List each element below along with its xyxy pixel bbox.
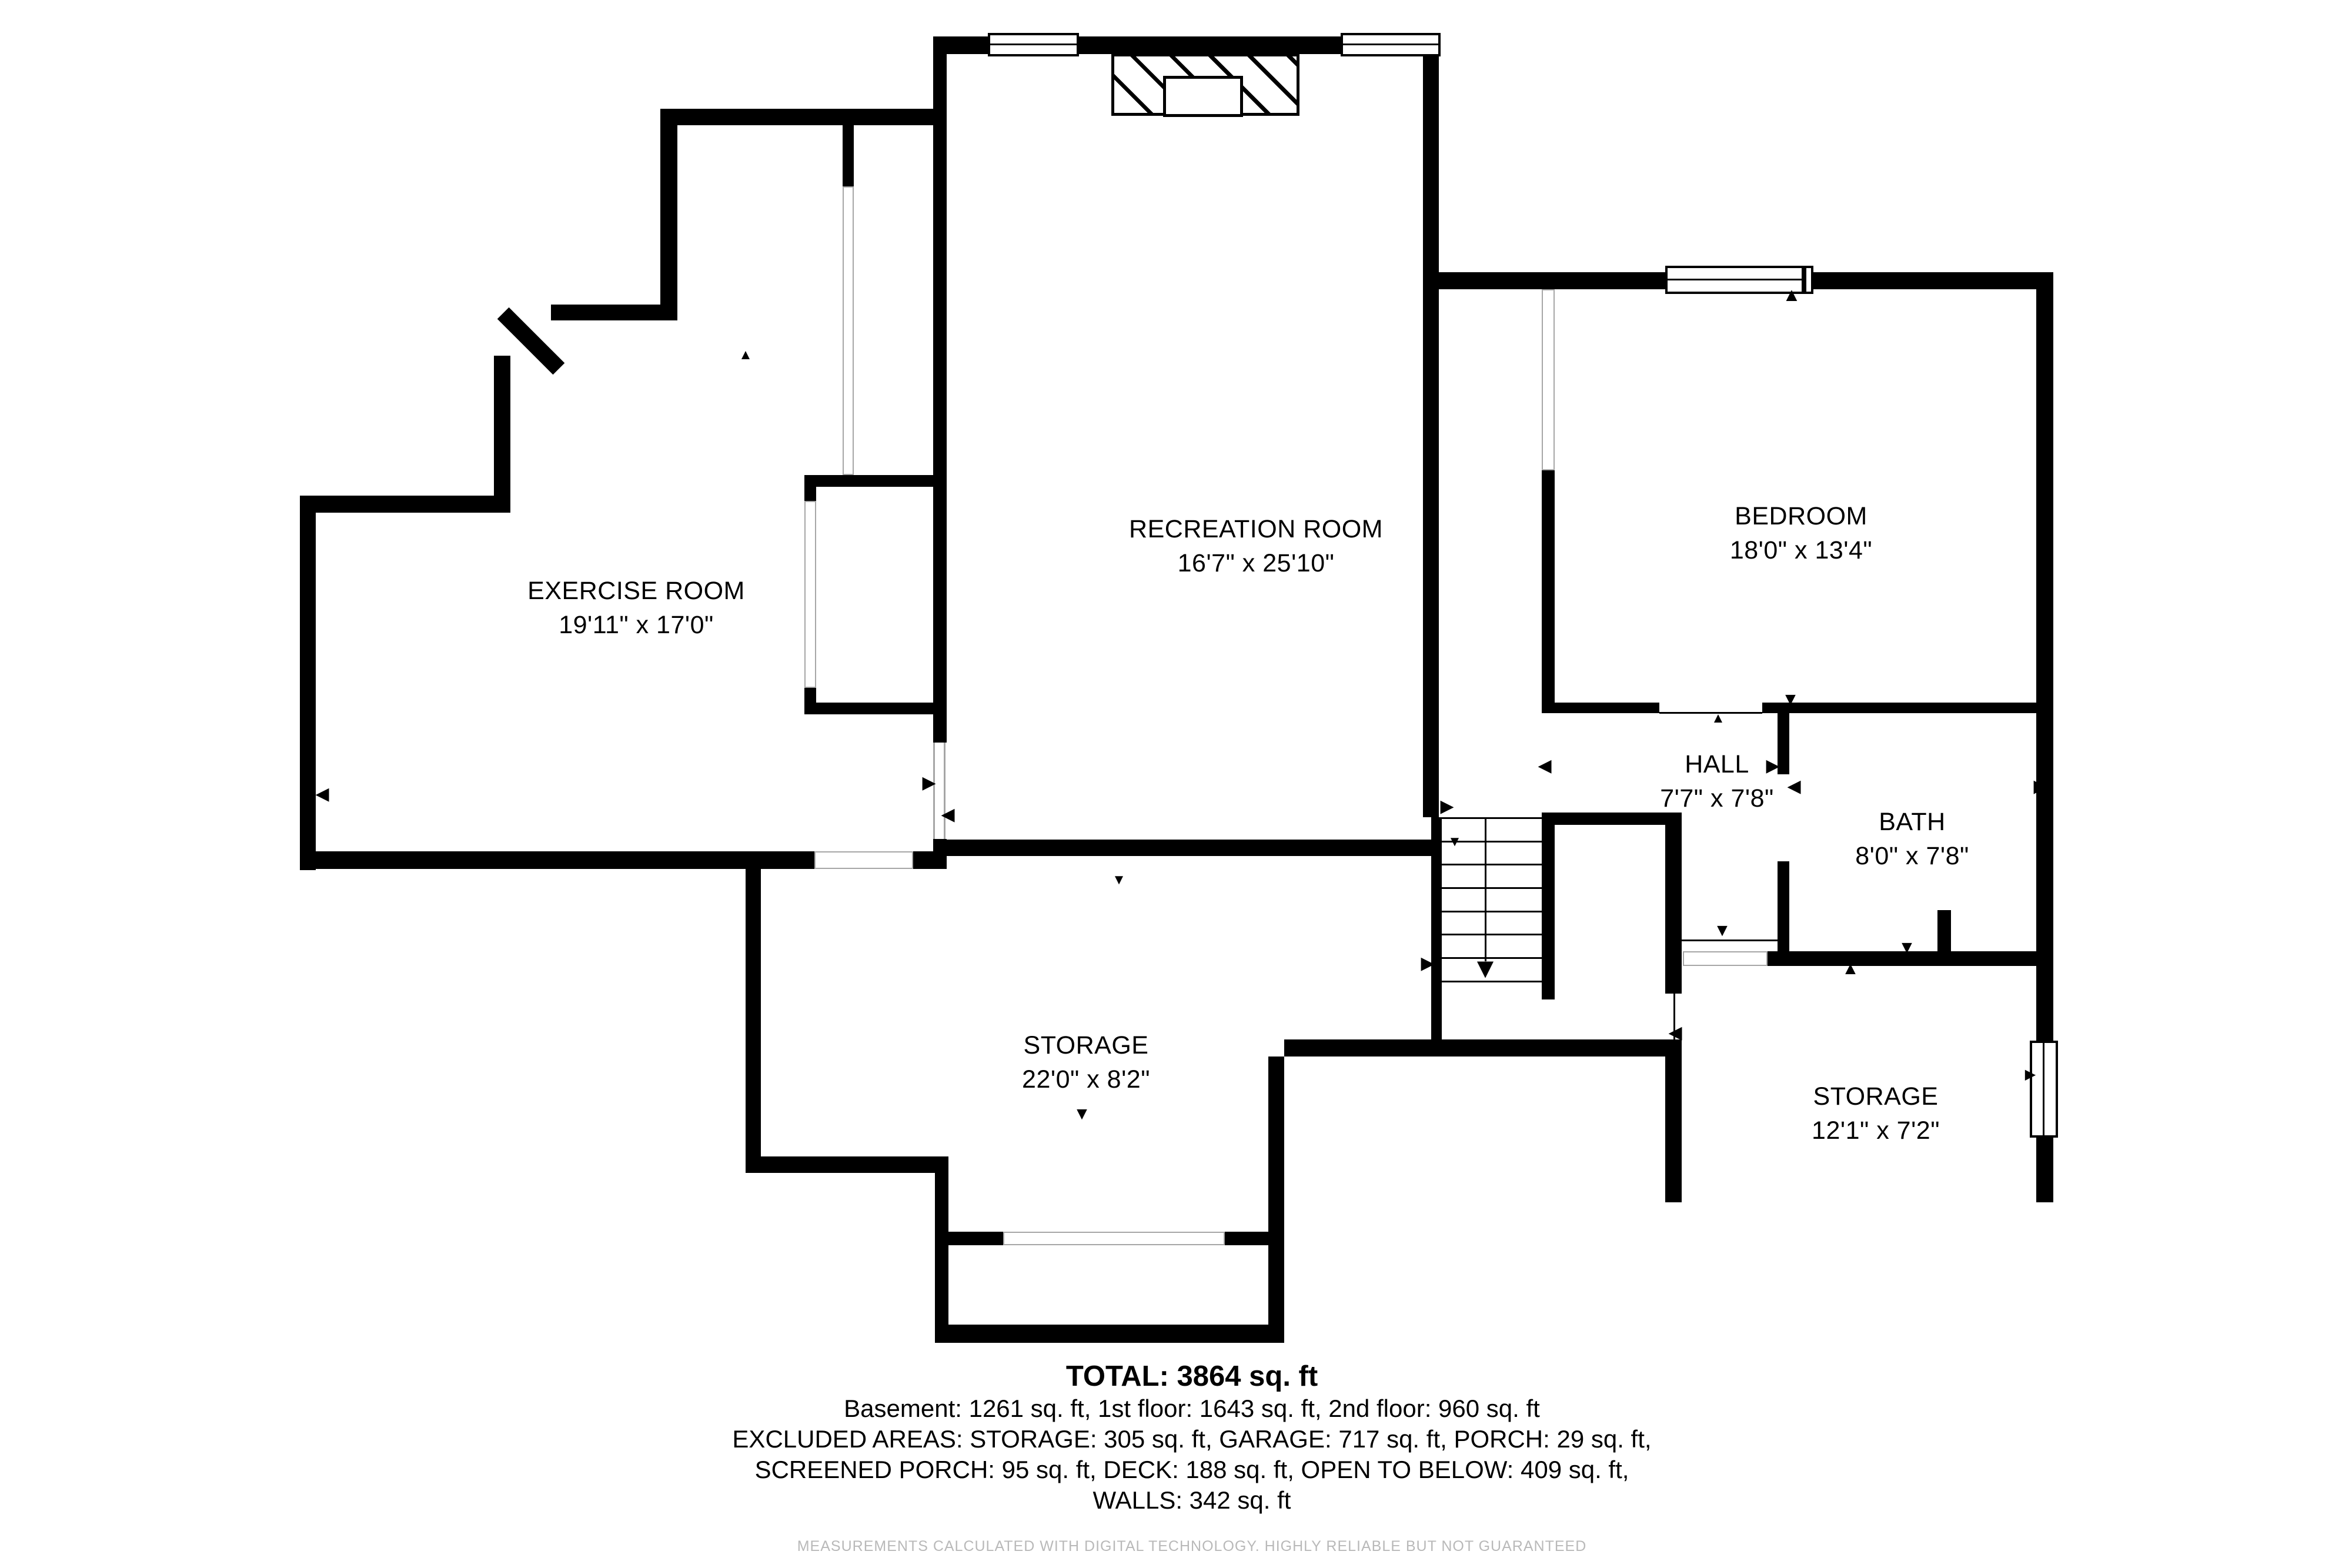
- dimension-arrow: ▶: [2025, 1068, 2036, 1082]
- dimension-arrow: ▲: [739, 348, 753, 362]
- window: [988, 33, 1079, 56]
- wall-segment: [843, 125, 854, 186]
- dimension-arrow: ▼: [1898, 939, 1916, 957]
- wall-segment: [1812, 272, 2053, 289]
- window: [843, 186, 854, 475]
- dimension-arrow: ▲: [1782, 285, 1801, 304]
- dimension-arrow: ◀: [941, 806, 954, 824]
- wall-segment: [1542, 813, 1682, 825]
- window-post: [1804, 266, 1813, 294]
- wall-segment: [494, 356, 510, 513]
- room-name: HALL: [1685, 750, 1749, 778]
- dimension-arrow: ▼: [1448, 835, 1462, 849]
- wall-segment: [1665, 825, 1682, 994]
- summary-line: WALLS: 342 sq. ft: [16, 1485, 2352, 1516]
- room-label-bath: BATH 8'0" x 7'8": [1855, 805, 1969, 873]
- wall-segment: [660, 109, 677, 320]
- wall-segment: [2036, 1138, 2053, 1202]
- disclaimer-text: MEASUREMENTS CALCULATED WITH DIGITAL TEC…: [16, 1531, 2352, 1562]
- wall-segment: [1431, 817, 1442, 1057]
- summary-line: SCREENED PORCH: 95 sq. ft, DECK: 188 sq.…: [16, 1455, 2352, 1485]
- dimension-arrow: ◀: [1668, 1024, 1682, 1042]
- wall-segment: [660, 109, 945, 125]
- wall-segment: [746, 1156, 948, 1173]
- room-dims: 8'0" x 7'8": [1855, 842, 1969, 870]
- fireplace-firebox: [1163, 76, 1243, 117]
- room-label-storage: STORAGE 22'0" x 8'2": [1022, 1028, 1150, 1096]
- room-label-recreation: RECREATION ROOM 16'7" x 25'10": [1129, 512, 1383, 580]
- dimension-arrow: ▲: [1711, 711, 1725, 726]
- wall-segment: [2036, 272, 2053, 1041]
- wall-segment: [1423, 36, 1439, 817]
- wall-segment: [948, 1232, 1003, 1245]
- room-dims: 19'11" x 17'0": [559, 611, 714, 639]
- summary-line: Basement: 1261 sq. ft, 1st floor: 1643 s…: [16, 1393, 2352, 1424]
- wall-segment: [804, 487, 816, 501]
- basement-floor-plan: EXERCISE ROOM 19'11" x 17'0" RECREATION …: [0, 0, 2352, 1568]
- dimension-arrow: ▲: [1419, 49, 1438, 68]
- room-name: STORAGE: [1024, 1031, 1149, 1059]
- stairs-center-line: [1485, 817, 1486, 961]
- room-label-storage-2: STORAGE 12'1" x 7'2": [1812, 1079, 1940, 1148]
- wall-segment: [300, 496, 510, 513]
- wall-segment: [1762, 703, 2053, 713]
- room-label-exercise: EXERCISE ROOM 19'11" x 17'0": [527, 574, 745, 642]
- room-label-bedroom: BEDROOM 18'0" x 13'4": [1730, 499, 1872, 567]
- stairs-tread: [1442, 911, 1542, 912]
- door-opening: [814, 851, 913, 869]
- total-area: TOTAL: 3864 sq. ft: [16, 1359, 2352, 1393]
- dimension-arrow: ▼: [1713, 922, 1731, 940]
- room-dims: 22'0" x 8'2": [1022, 1065, 1150, 1094]
- wall-segment: [300, 851, 814, 869]
- wall-segment: [1225, 1232, 1268, 1245]
- window: [804, 501, 816, 688]
- wall-segment: [816, 703, 945, 714]
- room-dims: 7'7" x 7'8": [1660, 784, 1774, 813]
- dimension-arrow: ▶: [1421, 955, 1434, 972]
- wall-segment: [746, 851, 761, 1173]
- stairs-tread: [1442, 934, 1542, 935]
- dimension-arrow: ▼: [1112, 873, 1126, 887]
- room-dims: 16'7" x 25'10": [1178, 549, 1335, 577]
- dimension-arrow: ▶: [1440, 798, 1454, 815]
- dimension-arrow: ▶: [2033, 778, 2047, 795]
- wall-segment: [1284, 1039, 1682, 1057]
- dimension-arrow: ◀: [1787, 778, 1800, 795]
- wall-segment: [935, 1325, 1284, 1343]
- stairs-tread: [1442, 887, 1542, 889]
- room-name: STORAGE: [1813, 1082, 1939, 1111]
- dimension-arrow: ▲: [1842, 960, 1859, 978]
- wall-segment: [1778, 861, 1789, 962]
- wall-segment: [551, 305, 677, 320]
- window: [2030, 1041, 2058, 1138]
- stairs-tread: [1442, 817, 1542, 819]
- room-dims: 12'1" x 7'2": [1812, 1116, 1940, 1145]
- room-name: RECREATION ROOM: [1129, 515, 1383, 543]
- area-summary: TOTAL: 3864 sq. ft Basement: 1261 sq. ft…: [16, 1359, 2352, 1562]
- door-opening: [1003, 1232, 1225, 1245]
- dimension-arrow: ▼: [1073, 1105, 1091, 1123]
- wall-segment: [1555, 703, 1659, 713]
- wall-segment: [913, 851, 947, 869]
- dimension-arrow: ▶: [922, 774, 936, 792]
- dimension-arrow: ▶: [1766, 757, 1779, 775]
- room-label-hall: HALL 7'7" x 7'8": [1660, 747, 1774, 815]
- room-name: EXERCISE ROOM: [527, 577, 745, 605]
- threshold-line: [944, 743, 946, 839]
- summary-line: EXCLUDED AREAS: STORAGE: 305 sq. ft, GAR…: [16, 1424, 2352, 1455]
- dimension-arrow: ◀: [1538, 757, 1551, 775]
- wall-segment: [1542, 825, 1555, 999]
- wall-segment: [933, 36, 947, 743]
- wall-segment: [804, 475, 947, 487]
- wall-segment: [1542, 470, 1555, 713]
- room-name: BEDROOM: [1735, 502, 1867, 530]
- wall-segment: [1665, 1044, 1682, 1202]
- wall-segment: [804, 688, 816, 714]
- wall-segment: [1268, 1057, 1284, 1343]
- door-opening: [1683, 951, 1768, 966]
- room-name: BATH: [1879, 808, 1946, 836]
- stairs-tread: [1442, 864, 1542, 865]
- wall-segment: [947, 840, 1431, 856]
- dimension-arrow: ◀: [315, 785, 329, 803]
- wall-segment: [300, 496, 316, 870]
- wall-segment: [1439, 272, 1665, 289]
- dimension-arrow: ▼: [1782, 691, 1799, 708]
- dimension-arrow: ▼: [1471, 955, 1499, 983]
- wall-segment: [935, 1156, 948, 1343]
- door-opening: [1542, 289, 1555, 470]
- room-dims: 18'0" x 13'4": [1730, 536, 1872, 564]
